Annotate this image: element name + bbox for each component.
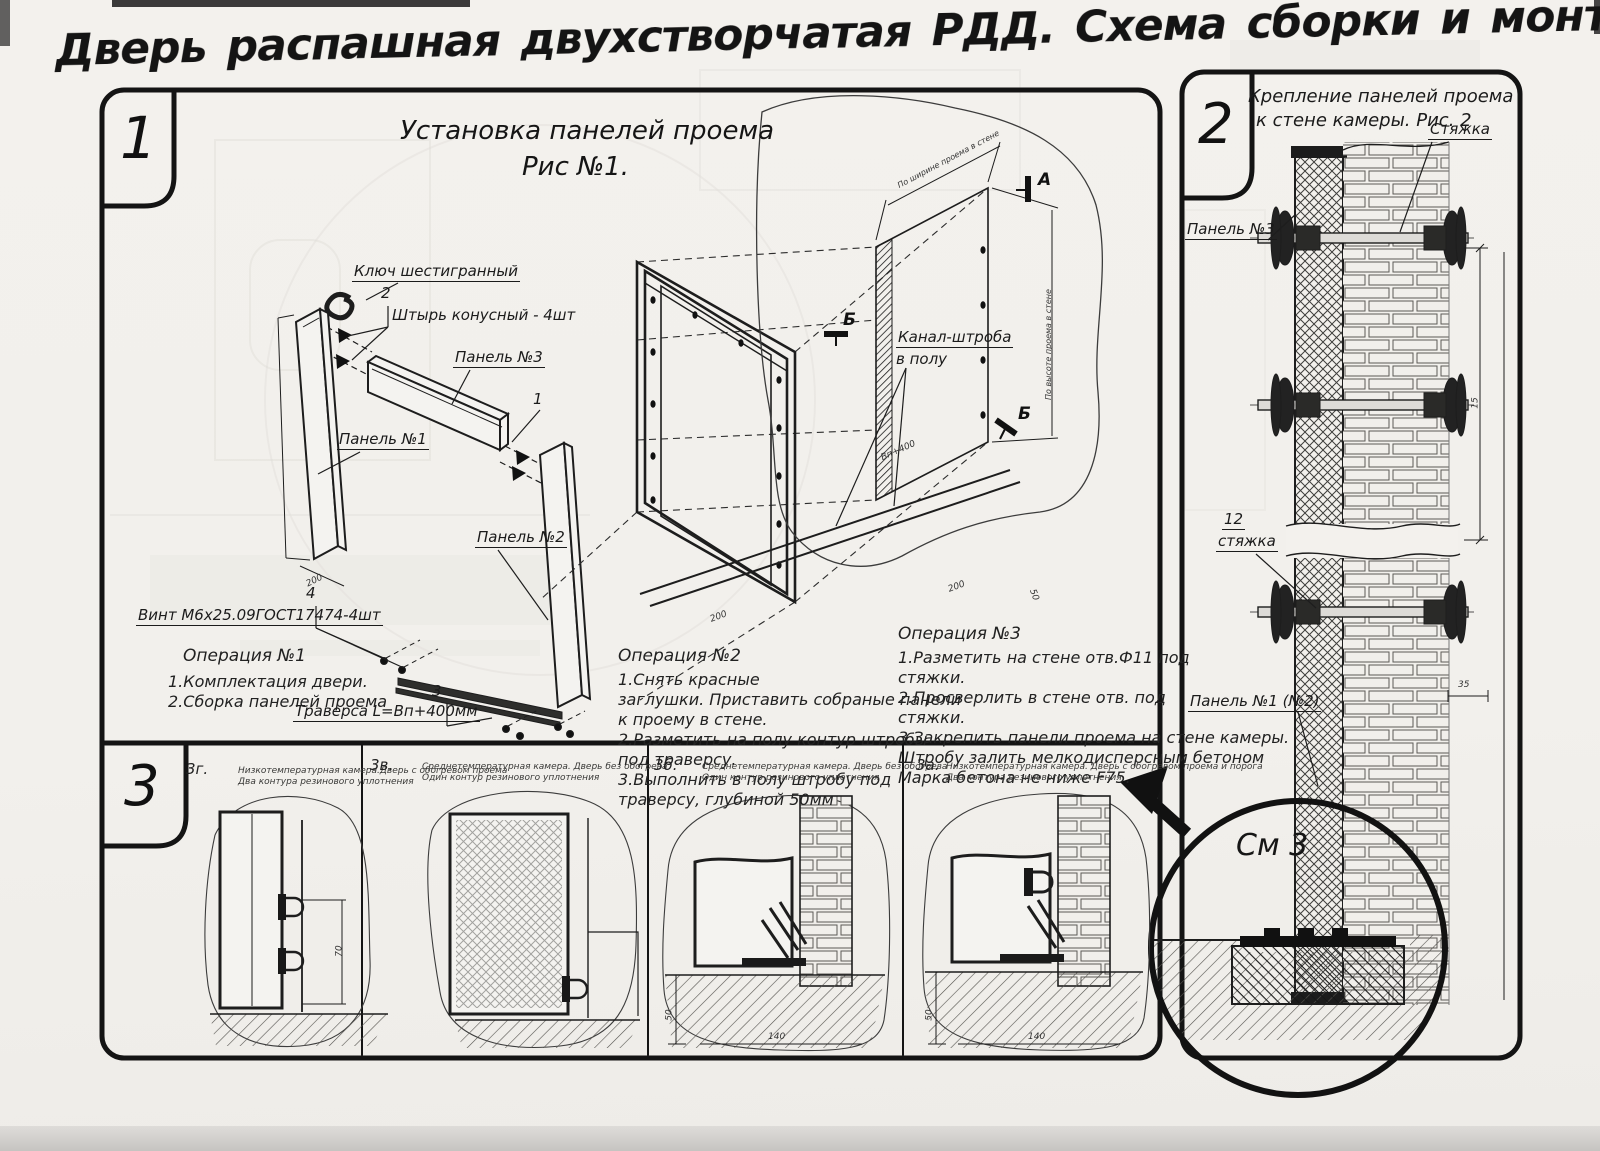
- channel-label-line1: Канал-штроба: [896, 328, 1013, 348]
- cell-3b-code: 3б.: [654, 756, 678, 774]
- detail-3v: [428, 791, 640, 1048]
- op2-title: Операция №2: [618, 646, 741, 666]
- op1-line2: 2.Сборка панелей проема: [168, 692, 387, 711]
- op3-line1: 1.Разметить на стене отв.Ф11 под: [898, 648, 1190, 667]
- pin-item-number: 2: [381, 284, 391, 302]
- section-mark-b1: Б: [843, 310, 856, 330]
- panel-strip: [1295, 152, 1343, 1000]
- item1-number: 1: [533, 390, 543, 408]
- panel12-label: Панель №1 (№2): [1188, 692, 1321, 712]
- op2-line1: 1.Снять красные: [618, 670, 760, 689]
- cell-3a-code: 3а.: [916, 756, 940, 774]
- op2-line4: 2.Разметить на полу контур штробы: [618, 730, 927, 749]
- frame-bolt-holes: [650, 296, 781, 569]
- op3-line2: стяжки.: [898, 668, 965, 687]
- op1-line1: 1.Комплектация двери.: [168, 672, 368, 691]
- panel3-label: Панель №3: [453, 348, 545, 368]
- dim-35: 35: [1458, 680, 1469, 690]
- line-art: [0, 0, 1600, 1151]
- op3-line3: 2.Просверлить в стене отв. под: [898, 688, 1166, 707]
- section3-number: 3: [124, 754, 160, 819]
- panel1-label: Панель №1: [337, 430, 429, 450]
- cone-pin-label: Штырь конусный - 4шт: [392, 306, 575, 324]
- drawing-sheet: Дверь распашная двухстворчатая РДД. Схем…: [0, 0, 1600, 1151]
- detail-3g: [205, 796, 388, 1046]
- tie-label: Стяжка: [1428, 120, 1492, 140]
- detail-3a: [923, 793, 1150, 1050]
- section-marks: [824, 176, 1028, 434]
- section-mark-a: А: [1038, 170, 1051, 190]
- op2-line3: к проему в стене.: [618, 710, 768, 729]
- op3-line5: 3.Закрепить панели проема на стене камер…: [898, 728, 1289, 747]
- cell-3a-desc2: Два контура резинового уплотнения: [946, 773, 1263, 784]
- cell-3a-desc1: Низкотемпературная камера. Дверь с обогр…: [946, 762, 1263, 773]
- assembled-view-drawing: [540, 96, 1102, 700]
- dim-50-3b: 50: [665, 1009, 675, 1020]
- panel3-wall-label: Панель №3: [1185, 220, 1277, 240]
- section2-number: 2: [1198, 92, 1234, 157]
- cell-3b-desc2: Один контур резинового уплотнения: [702, 773, 947, 784]
- cell-3v-desc2: Один контур резинового уплотнения: [422, 773, 667, 784]
- section1-number: 1: [120, 104, 157, 172]
- dim-opening-height: По высоте проема в стене: [1044, 289, 1053, 400]
- op1-title: Операция №1: [183, 646, 306, 666]
- cell-3v-code: 3в.: [370, 756, 393, 774]
- see-detail-3-label: См 3: [1236, 828, 1308, 863]
- op3-title: Операция №3: [898, 624, 1021, 644]
- cell-3b-desc1: Среднетемпературная камера. Дверь без об…: [702, 762, 947, 773]
- dim-50-3a: 50: [925, 1009, 935, 1020]
- dim-140-3a: 140: [1028, 1032, 1045, 1042]
- section-mark-b2: Б: [1018, 404, 1031, 424]
- cell-3v-desc1: Среднетемпературная камера. Дверь без об…: [422, 762, 667, 773]
- section2-title-line1: Крепление панелей проема: [1248, 86, 1513, 107]
- dim-70: 70: [335, 945, 345, 956]
- op2-line7: траверсу, глубиной 50мм: [618, 790, 834, 809]
- section1-title: Установка панелей проема: [400, 116, 774, 146]
- hex-key-label: Ключ шестигранный: [352, 262, 520, 282]
- pos12-number: 12: [1222, 510, 1245, 530]
- op3-line4: стяжки.: [898, 708, 965, 727]
- screw-label: Винт М6х25.09ГОСТ17474-4шт: [136, 606, 383, 626]
- tie12-label: стяжка: [1216, 532, 1278, 552]
- wall-fixing-drawing: [1120, 142, 1504, 1095]
- section1-figure: Рис №1.: [522, 152, 629, 182]
- brick-wall: [1343, 142, 1449, 1005]
- detail-3b: [663, 795, 890, 1050]
- floor-details-drawings: [205, 791, 1150, 1050]
- dim-140-3b: 140: [768, 1032, 785, 1042]
- cell-3g-code: 3г.: [186, 760, 208, 778]
- channel-label-line2: в полу: [896, 350, 947, 368]
- panel2-label: Панель №2: [475, 528, 567, 548]
- dim-15: 15: [1471, 397, 1481, 408]
- traverse-item-number: 3: [432, 682, 442, 700]
